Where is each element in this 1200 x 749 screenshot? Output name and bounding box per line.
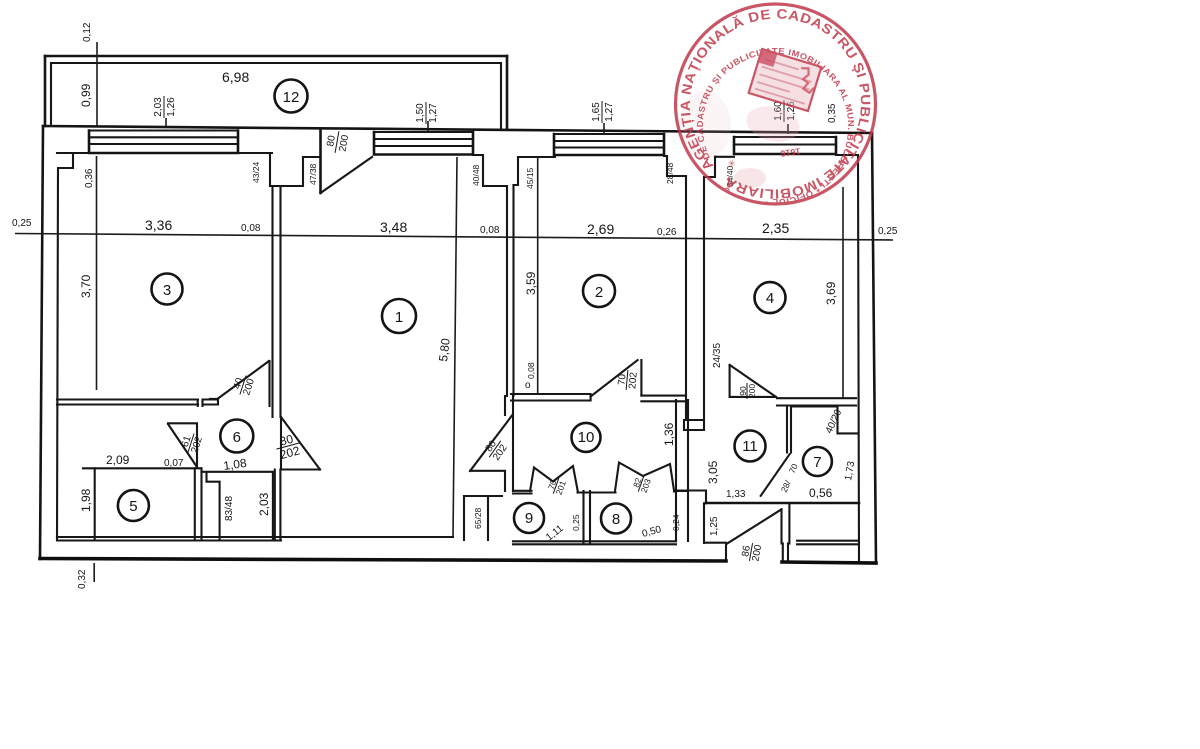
svg-text:1,98: 1,98: [79, 488, 93, 512]
svg-text:45/15: 45/15: [525, 167, 535, 189]
svg-text:3,69: 3,69: [824, 281, 838, 305]
svg-text:0,25: 0,25: [12, 218, 32, 229]
svg-text:2,35: 2,35: [762, 220, 789, 236]
svg-text:202: 202: [627, 371, 639, 389]
svg-text:2,03: 2,03: [153, 97, 164, 117]
svg-text:1: 1: [395, 309, 403, 326]
svg-text:4: 4: [766, 290, 774, 307]
svg-text:1,65: 1,65: [591, 102, 602, 122]
svg-text:1,26: 1,26: [166, 97, 177, 117]
svg-text:3,70: 3,70: [79, 274, 93, 298]
svg-text:0,25: 0,25: [878, 226, 898, 237]
svg-text:3,36: 3,36: [145, 217, 172, 233]
svg-text:40/48: 40/48: [471, 164, 481, 186]
svg-text:2: 2: [595, 284, 603, 301]
svg-text:11: 11: [742, 438, 758, 455]
svg-text:9: 9: [525, 510, 533, 527]
svg-text:0,07: 0,07: [164, 458, 184, 469]
svg-text:5: 5: [129, 498, 137, 515]
svg-text:0,25: 0,25: [571, 514, 581, 531]
svg-text:0,56: 0,56: [809, 486, 833, 500]
svg-text:1,27: 1,27: [428, 103, 439, 123]
svg-text:0,24: 0,24: [671, 514, 681, 531]
svg-text:1,50: 1,50: [415, 103, 426, 123]
svg-text:0,99: 0,99: [79, 83, 93, 107]
svg-text:o: o: [525, 380, 531, 391]
svg-text:1,27: 1,27: [604, 102, 615, 122]
svg-text:0,08: 0,08: [480, 225, 500, 236]
svg-text:65/28: 65/28: [473, 507, 483, 529]
svg-text:6: 6: [233, 429, 241, 446]
svg-text:2,69: 2,69: [587, 221, 614, 237]
svg-text:0,36: 0,36: [84, 168, 95, 188]
svg-text:2,03: 2,03: [257, 492, 271, 516]
svg-text:1,33: 1,33: [726, 489, 746, 500]
svg-text:5,80: 5,80: [436, 337, 453, 362]
svg-text:3: 3: [163, 282, 171, 299]
svg-text:0,32: 0,32: [77, 569, 88, 589]
svg-text:24/35: 24/35: [712, 343, 723, 368]
svg-text:0,08: 0,08: [241, 223, 261, 234]
svg-text:43/24: 43/24: [251, 161, 261, 183]
svg-text:12: 12: [283, 89, 300, 106]
svg-text:200: 200: [747, 384, 757, 398]
svg-text:83/48: 83/48: [224, 496, 235, 521]
svg-text:7: 7: [813, 454, 821, 471]
svg-text:47/38: 47/38: [308, 163, 318, 185]
svg-text:1,36: 1,36: [662, 422, 676, 446]
svg-text:2,09: 2,09: [106, 453, 130, 467]
svg-text:6,98: 6,98: [222, 69, 249, 85]
svg-text:1,25: 1,25: [709, 516, 720, 536]
svg-text:28/48: 28/48: [665, 162, 675, 184]
svg-text:3,48: 3,48: [380, 219, 407, 235]
svg-text:8: 8: [612, 511, 620, 528]
svg-text:0,08: 0,08: [526, 362, 536, 379]
svg-text:10: 10: [578, 429, 595, 446]
svg-text:3,59: 3,59: [524, 271, 538, 295]
svg-text:0,35: 0,35: [827, 103, 838, 123]
svg-text:0,26: 0,26: [657, 227, 677, 238]
svg-text:3,05: 3,05: [706, 460, 720, 484]
svg-text:0,12: 0,12: [82, 22, 93, 42]
